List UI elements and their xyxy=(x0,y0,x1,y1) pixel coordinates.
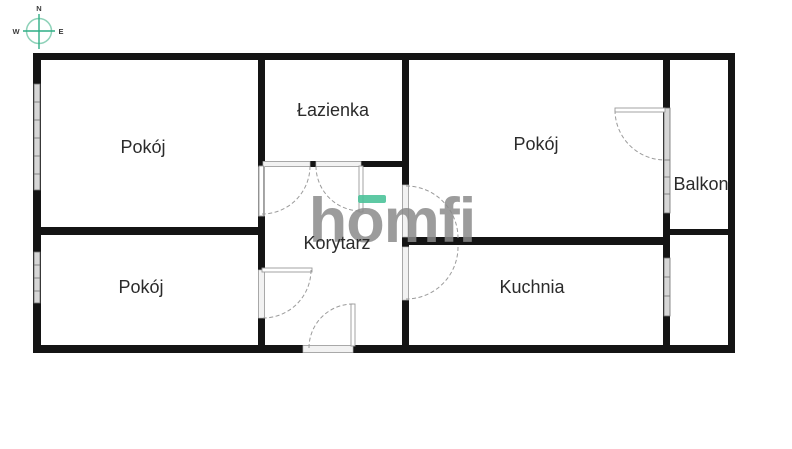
compass-rose-icon: N W E xyxy=(12,4,63,49)
room-label-korytarz: Korytarz xyxy=(303,233,370,253)
floor-plan-canvas: homfi Pokój Łazienka Pokój Balkon Pokój … xyxy=(0,0,792,449)
room-label-balkon: Balkon xyxy=(673,174,728,194)
door-arc-room-bottom-left xyxy=(263,270,311,318)
wall-right-outer xyxy=(728,53,735,353)
wall-between-left-rooms xyxy=(33,227,265,235)
window-room-bottom-left xyxy=(34,252,40,303)
door-opening-entrance xyxy=(303,346,353,353)
room-label-pokoj-top-right: Pokój xyxy=(513,134,558,154)
door-leaf-bathroom-left xyxy=(259,166,264,216)
balcony-door-window xyxy=(664,108,670,213)
room-label-pokoj-top-left: Pokój xyxy=(120,137,165,157)
room-label-pokoj-bottom-left: Pokój xyxy=(118,277,163,297)
door-arc-balcony xyxy=(615,110,665,160)
room-label-kuchnia: Kuchnia xyxy=(499,277,565,297)
door-opening-bathroom-right xyxy=(316,162,361,167)
wall-top xyxy=(33,53,735,60)
door-opening-room-bottom-left xyxy=(259,270,265,318)
room-label-lazienka: Łazienka xyxy=(297,100,370,120)
door-leaf-room-bottom-left xyxy=(262,268,312,272)
compass-label-east: E xyxy=(58,27,63,36)
door-opening-bathroom-left xyxy=(263,162,310,167)
compass-label-north: N xyxy=(36,4,41,13)
door-leaf-balcony xyxy=(615,108,665,112)
wall-balcony-bottom xyxy=(663,229,735,235)
door-leaf-entrance xyxy=(351,304,355,346)
wall-bottom xyxy=(33,345,735,353)
door-arc-bathroom-left xyxy=(262,166,310,214)
compass-label-west: W xyxy=(12,27,20,36)
floor-plan: homfi Pokój Łazienka Pokój Balkon Pokój … xyxy=(0,0,792,449)
door-arc-entrance xyxy=(309,304,353,348)
window-kitchen xyxy=(664,258,670,316)
